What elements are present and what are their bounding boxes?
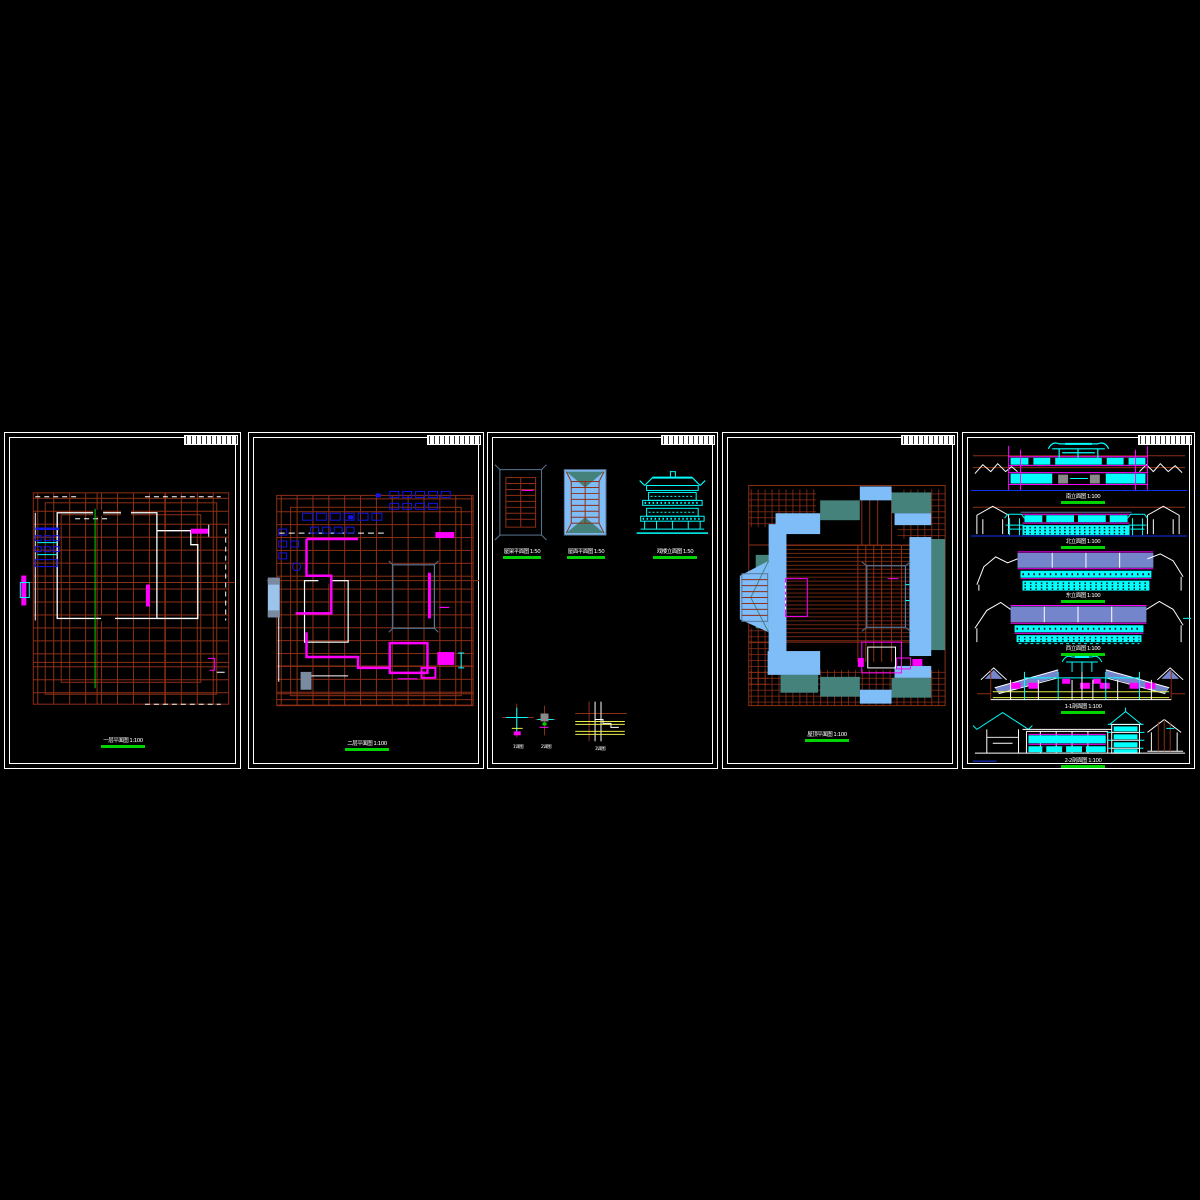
- details-drawing: [488, 433, 717, 768]
- caption-underline: [503, 556, 541, 559]
- caption-underline: [1061, 546, 1105, 549]
- drawing-caption: 2-2剖面图 1:100: [1051, 758, 1115, 764]
- tower-elevation: [637, 472, 708, 533]
- drawing-caption: 戏楼立面图 1:50: [646, 549, 704, 555]
- caption-underline: [1061, 653, 1105, 656]
- section-2-2: [973, 708, 1185, 762]
- caption-underline: [1061, 600, 1105, 603]
- sheet-floor-plan-2: 二层平面图 1:100: [248, 432, 484, 769]
- floor-plan-2-drawing: [249, 433, 483, 768]
- drawing-caption: 一层平面图 1:100: [75, 738, 171, 744]
- caption-underline: [567, 556, 605, 559]
- drawing-caption: 屋顶平面图 1:100: [779, 732, 875, 738]
- title-block: [427, 435, 481, 445]
- detail-2: [536, 706, 556, 736]
- caption-underline: [345, 748, 389, 751]
- caption-underline: [101, 745, 145, 748]
- drawing-caption: 南立面图 1:100: [1051, 494, 1115, 500]
- drawing-caption: 屋架平面图 1:50: [498, 549, 546, 555]
- drawing-caption: 西立面图 1:100: [1051, 646, 1115, 652]
- caption-underline: [1061, 501, 1105, 504]
- drawing-caption: 二层平面图 1:100: [319, 741, 415, 747]
- detail-label: 2详图: [534, 745, 558, 750]
- drawing-caption: 屋面平面图 1:50: [562, 549, 610, 555]
- sheet-elevations: 南立面图 1:100 北立面图 1:100 东立面图 1:100 西立面图 1:…: [962, 432, 1195, 769]
- sheet-roof-plan: 屋顶平面图 1:100: [722, 432, 958, 769]
- roof-plan-small: [564, 470, 606, 535]
- drawing-caption: 东立面图 1:100: [1051, 593, 1115, 599]
- detail-3: [575, 702, 627, 742]
- axis-grid: [23, 493, 234, 704]
- elevation-east: [977, 552, 1183, 591]
- elevation-south: [971, 443, 1187, 490]
- roof-plan-drawing: [723, 433, 957, 768]
- drawing-caption: 1-1剖面图 1:100: [1051, 704, 1115, 710]
- title-block: [1138, 435, 1192, 445]
- caption-underline: [653, 556, 697, 559]
- title-block: [661, 435, 715, 445]
- axis-grid: [267, 495, 479, 705]
- section-1-1: [977, 656, 1185, 699]
- caption-underline: [1061, 711, 1105, 714]
- caption-underline: [1061, 765, 1105, 768]
- floor-plan-1-drawing: [5, 433, 240, 768]
- elevation-north: [971, 506, 1187, 536]
- title-block: [184, 435, 238, 445]
- detail-label: 3详图: [588, 747, 612, 752]
- detail-label: 1详图: [506, 745, 530, 750]
- sheet-floor-plan-1: 一层平面图 1:100: [4, 432, 241, 769]
- drawing-caption: 北立面图 1:100: [1051, 539, 1115, 545]
- stair-block: [268, 578, 280, 618]
- caption-underline: [805, 739, 849, 742]
- sheet-roof-details: 屋架平面图 1:50 屋面平面图 1:50 戏楼立面图 1:50 1详图 2详图…: [487, 432, 718, 769]
- elevation-west: [975, 601, 1191, 643]
- detail-1: [502, 704, 534, 738]
- cad-model-space: 一层平面图 1:100: [0, 0, 1200, 1200]
- framing-plan: [495, 465, 547, 540]
- title-block: [901, 435, 955, 445]
